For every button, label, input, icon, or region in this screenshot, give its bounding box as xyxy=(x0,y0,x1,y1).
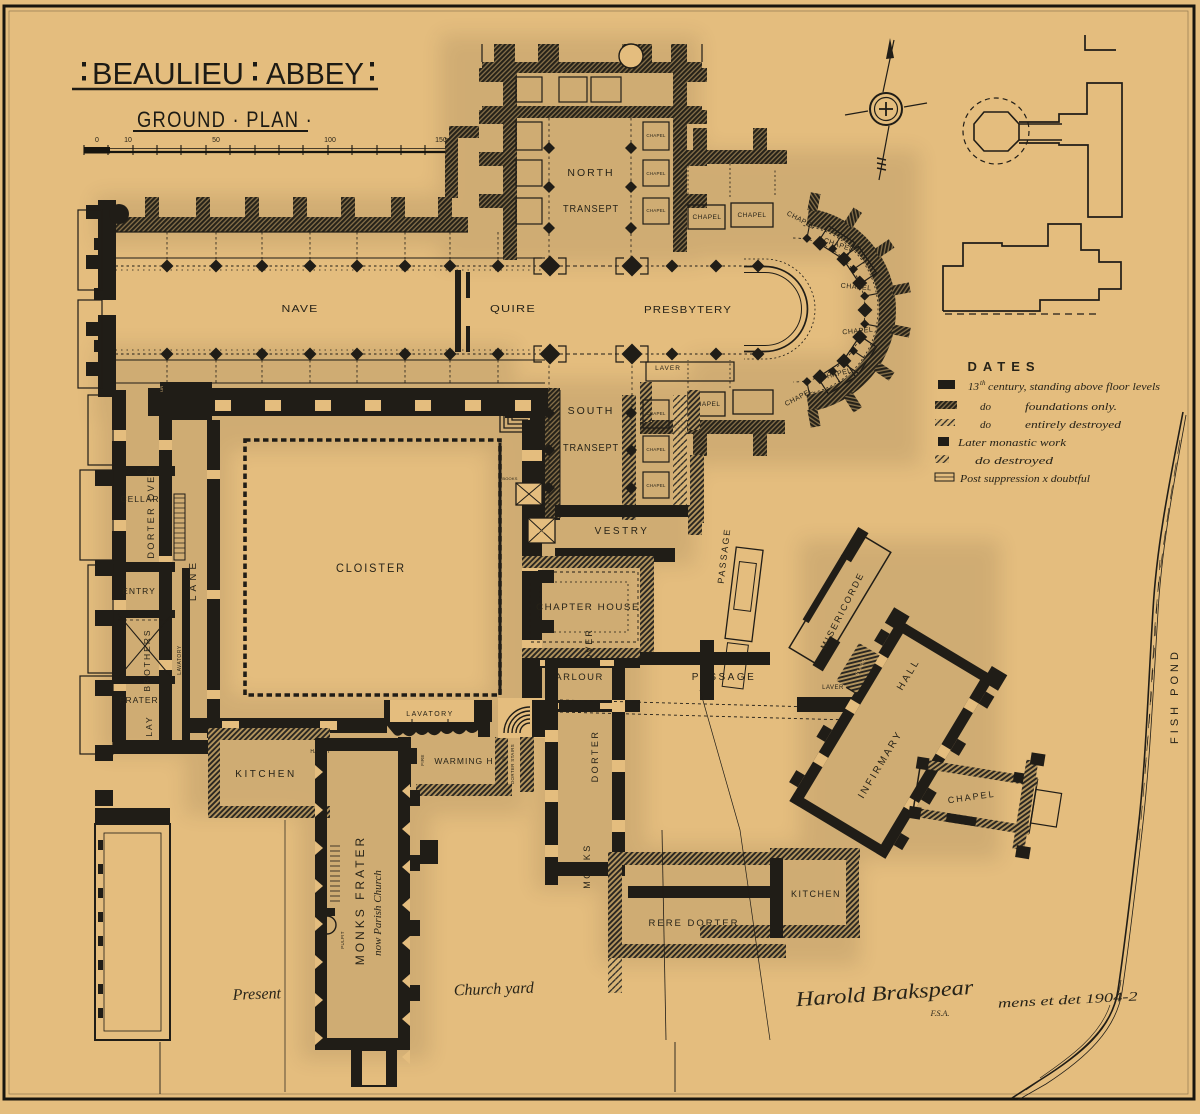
svg-text:CLOISTER: CLOISTER xyxy=(336,563,406,575)
svg-text:100: 100 xyxy=(324,137,336,144)
svg-text:13: 13 xyxy=(968,381,980,393)
svg-text:BOOKS: BOOKS xyxy=(502,476,517,481)
svg-text:DORTER STAIRS: DORTER STAIRS xyxy=(510,744,515,784)
svg-text:Post suppression x doubtful: Post suppression x doubtful xyxy=(959,473,1090,485)
svg-text:entirely destroyed: entirely destroyed xyxy=(1025,419,1122,431)
svg-text:KITCHEN: KITCHEN xyxy=(791,889,841,899)
svg-text:CHAPEL: CHAPEL xyxy=(646,171,666,176)
svg-text:Church yard: Church yard xyxy=(454,980,536,1000)
svg-text:OVER: OVER xyxy=(584,628,594,662)
svg-text:CHAPEL: CHAPEL xyxy=(692,214,721,221)
svg-text:TRANSEPT: TRANSEPT xyxy=(563,203,619,215)
svg-text:BROTHERS: BROTHERS xyxy=(142,628,152,691)
svg-text:th: th xyxy=(980,379,986,387)
svg-text:do: do xyxy=(980,401,992,413)
svg-text:KITCHEN: KITCHEN xyxy=(235,769,296,780)
svg-text:LAVER: LAVER xyxy=(822,685,844,691)
svg-text:ABBEY: ABBEY xyxy=(266,56,364,91)
svg-text:TRANSEPT: TRANSEPT xyxy=(563,442,619,454)
svg-text:WARMING H: WARMING H xyxy=(434,756,493,766)
svg-text:NAVE: NAVE xyxy=(282,303,319,315)
svg-text:Present: Present xyxy=(231,985,281,1004)
svg-text:FRATER: FRATER xyxy=(119,695,158,705)
svg-text:CHAPEL: CHAPEL xyxy=(646,447,666,452)
svg-text:F.S.A.: F.S.A. xyxy=(930,1009,950,1018)
svg-text:BEAULIEU: BEAULIEU xyxy=(92,56,244,91)
svg-text:do: do xyxy=(980,419,992,431)
svg-text:50: 50 xyxy=(212,137,220,144)
svg-text:10: 10 xyxy=(124,137,132,144)
svg-text:ENTRY: ENTRY xyxy=(122,586,156,596)
svg-text:GROUND · PLAN ·: GROUND · PLAN · xyxy=(137,107,313,132)
svg-text:BOOKS: BOOKS xyxy=(533,529,548,534)
svg-text:now Parish Church: now Parish Church xyxy=(372,870,384,956)
svg-text:do destroyed: do destroyed xyxy=(975,455,1054,467)
svg-text:CHAPEL: CHAPEL xyxy=(646,208,666,213)
svg-text:DATES: DATES xyxy=(967,359,1040,374)
svg-text:foundations only.: foundations only. xyxy=(1025,401,1117,413)
svg-text:VESTRY: VESTRY xyxy=(595,526,650,537)
svg-text:CHAPEL: CHAPEL xyxy=(646,411,666,416)
svg-text:NORTH: NORTH xyxy=(567,167,614,179)
svg-text:CHAPEL: CHAPEL xyxy=(737,212,766,219)
svg-text:LAVER: LAVER xyxy=(655,365,681,372)
svg-text:LAVATORY: LAVATORY xyxy=(177,645,183,675)
svg-text:0: 0 xyxy=(95,137,99,144)
svg-text:CHAPEL: CHAPEL xyxy=(646,133,666,138)
svg-text:FIRE: FIRE xyxy=(420,754,425,765)
svg-text:PRESBYTERY: PRESBYTERY xyxy=(644,304,732,316)
svg-text:SOUTH: SOUTH xyxy=(568,405,615,417)
svg-text:LAVATORY: LAVATORY xyxy=(406,711,454,718)
svg-text:century, standing above floor: century, standing above floor levels xyxy=(988,381,1160,393)
svg-text:FISH POND: FISH POND xyxy=(1169,648,1181,744)
svg-text:CHAPEL: CHAPEL xyxy=(646,483,666,488)
svg-text:CHAPTER HOUSE: CHAPTER HOUSE xyxy=(536,602,640,613)
svg-text:PULPIT: PULPIT xyxy=(340,931,345,949)
svg-text:Later monastic work: Later monastic work xyxy=(957,437,1068,449)
svg-text:DORTER OVER: DORTER OVER xyxy=(146,465,156,558)
svg-text:MONKS FRATER: MONKS FRATER xyxy=(353,835,367,965)
svg-text:QUIRE: QUIRE xyxy=(490,303,536,315)
svg-text:LANE: LANE xyxy=(188,559,199,601)
svg-text:LAY: LAY xyxy=(144,715,154,736)
svg-text:DORTER: DORTER xyxy=(590,730,600,783)
